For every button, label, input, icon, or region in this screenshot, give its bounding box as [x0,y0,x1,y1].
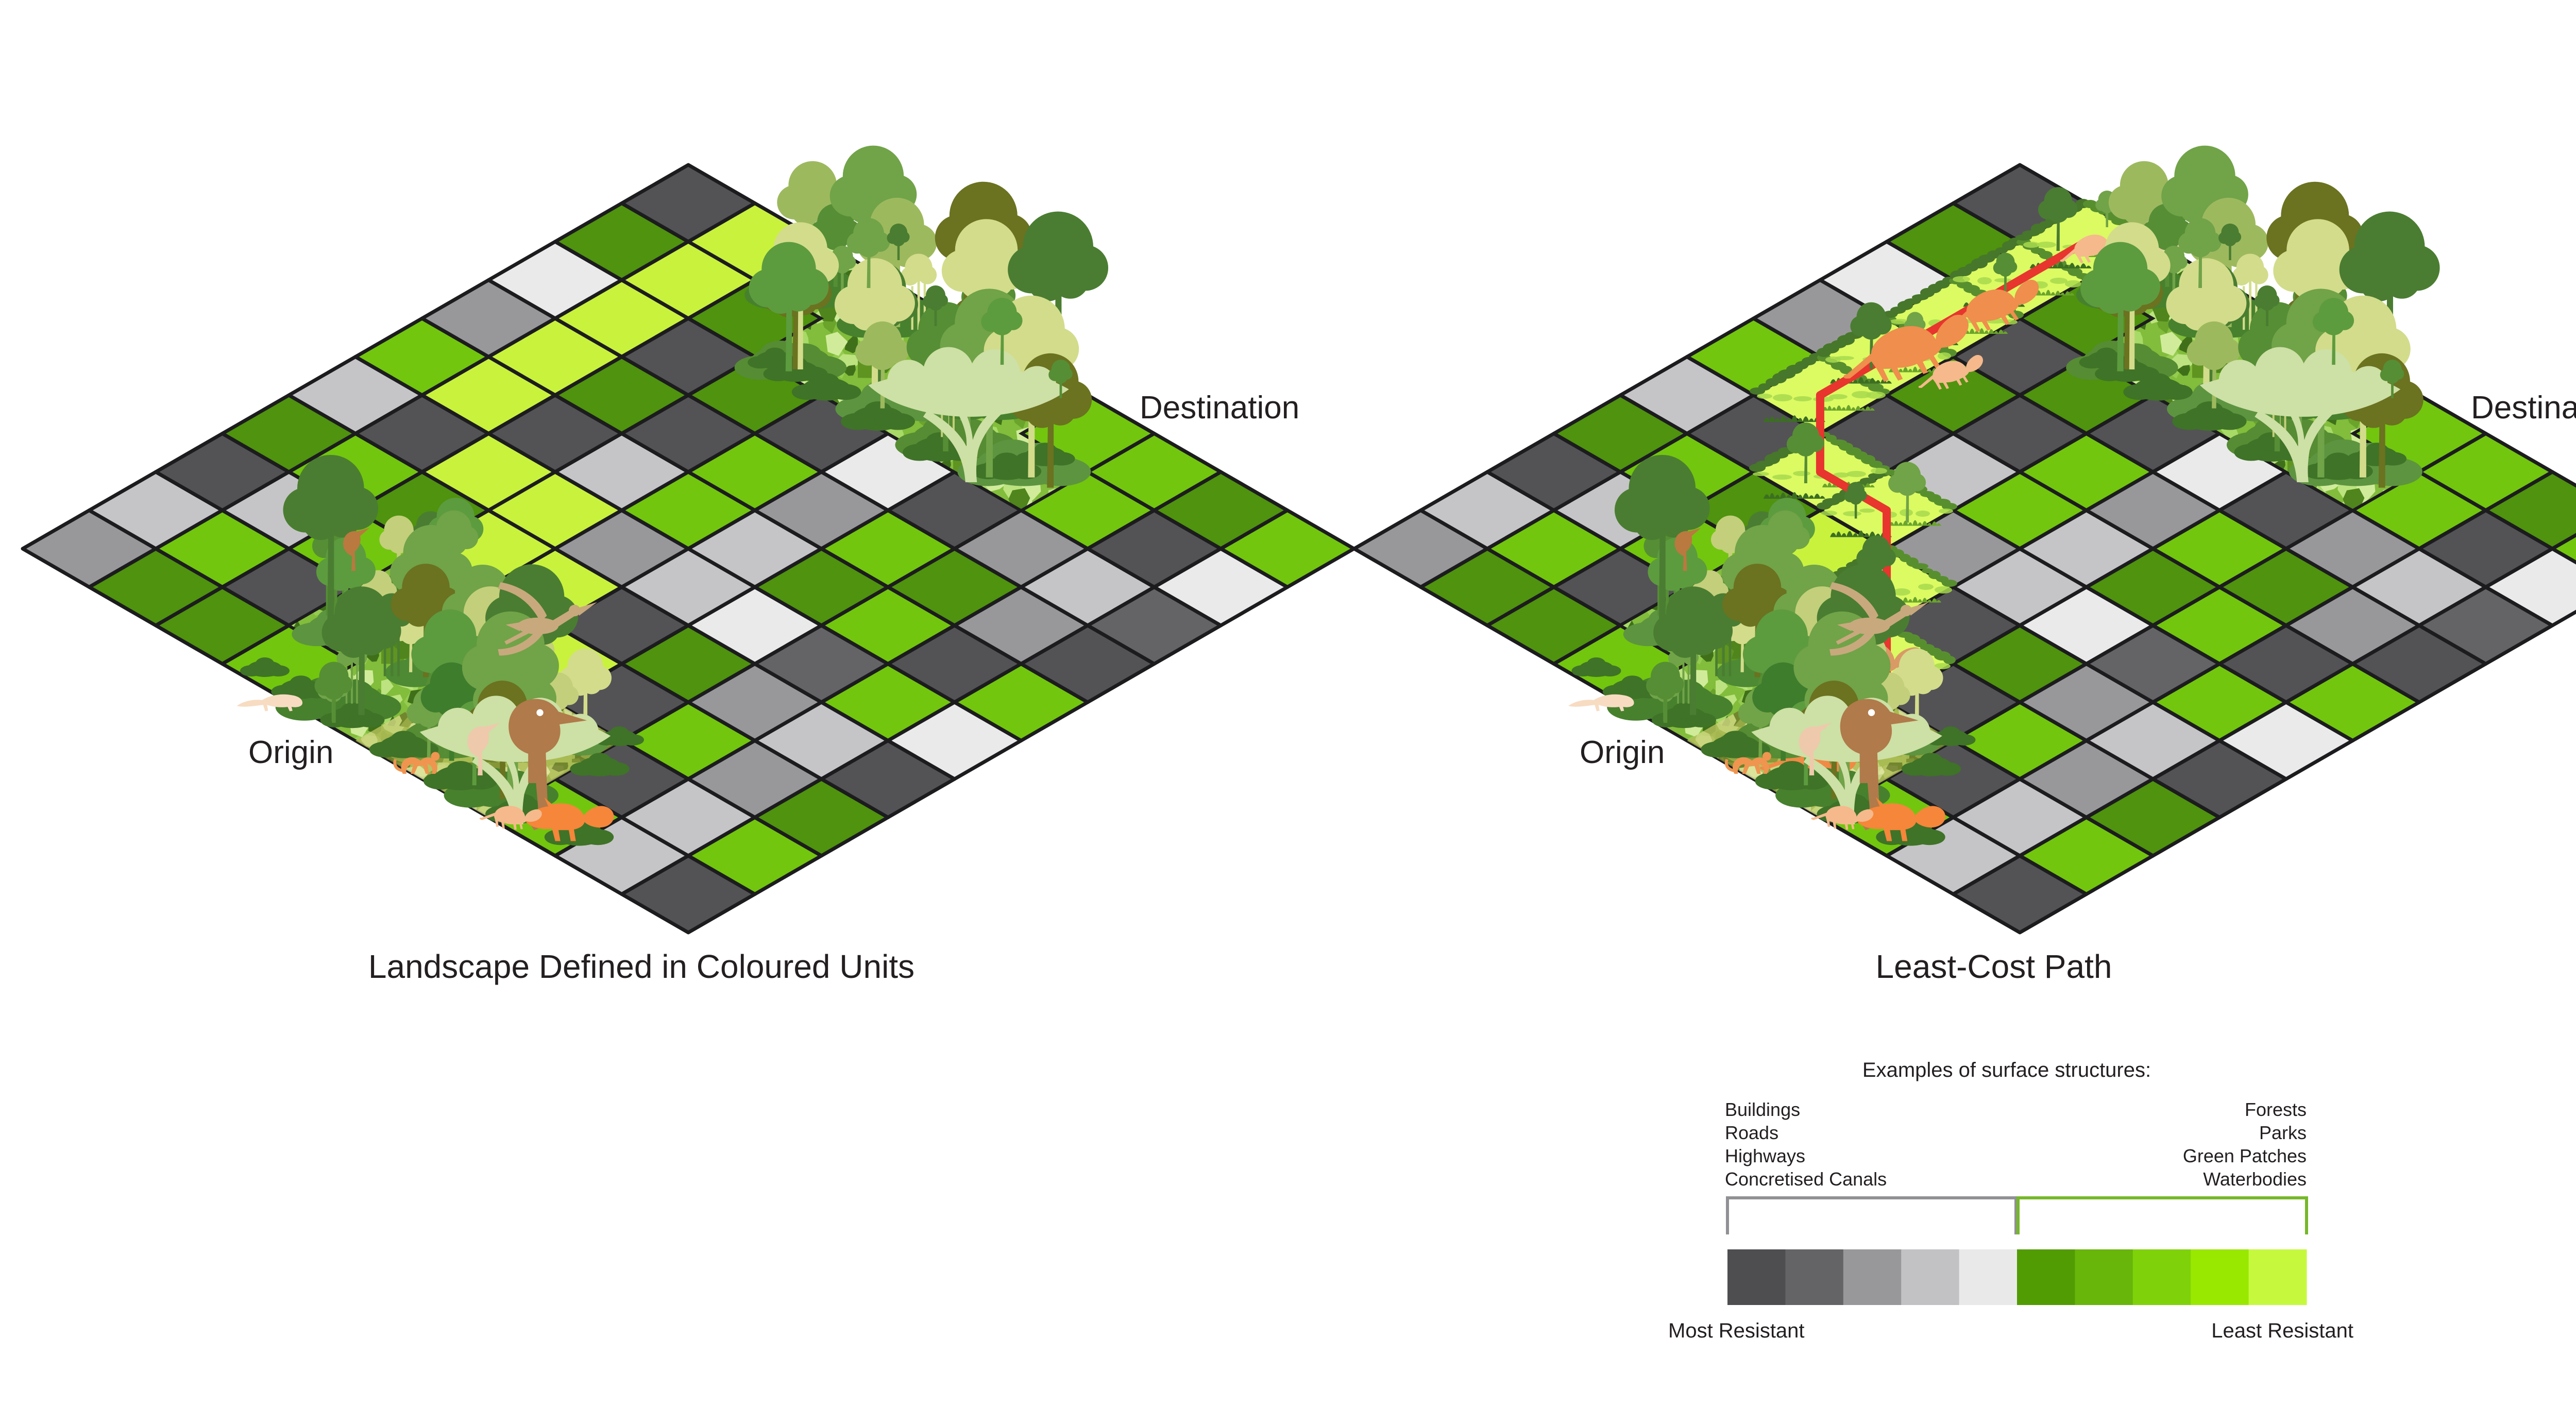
svg-text:Waterbodies: Waterbodies [2203,1168,2307,1190]
svg-text:Most Resistant: Most Resistant [1668,1319,1805,1342]
svg-text:Forests: Forests [2245,1099,2307,1120]
svg-text:Least Resistant: Least Resistant [2211,1319,2353,1342]
svg-text:Examples of surface structures: Examples of surface structures: [1862,1059,2151,1081]
svg-text:Buildings: Buildings [1725,1099,1800,1120]
svg-text:Destination: Destination [2471,390,2576,426]
svg-text:Parks: Parks [2259,1122,2307,1143]
svg-text:Roads: Roads [1725,1122,1778,1143]
svg-text:Destination: Destination [1140,390,1299,426]
svg-text:Origin: Origin [1580,735,1665,770]
svg-text:Least-Cost Path: Least-Cost Path [1876,948,2112,985]
svg-text:Landscape Defined in Coloured: Landscape Defined in Coloured Units [368,948,914,985]
svg-text:Origin: Origin [248,735,333,770]
svg-text:Concretised Canals: Concretised Canals [1725,1168,1887,1190]
svg-text:Highways: Highways [1725,1145,1805,1166]
svg-text:Green Patches: Green Patches [2183,1145,2307,1166]
